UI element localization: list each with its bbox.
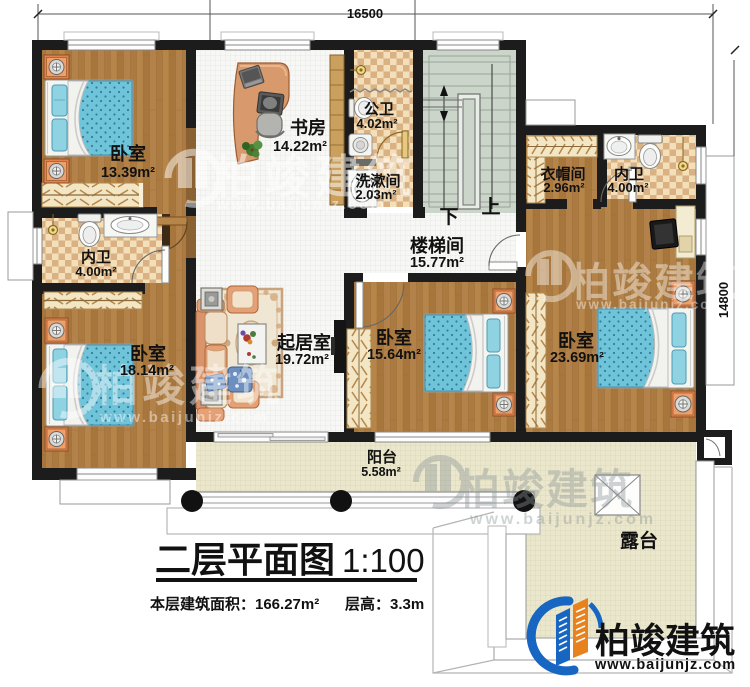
svg-text:二层平面图: 二层平面图 (155, 539, 335, 580)
svg-text:1:100: 1:100 (342, 542, 425, 579)
svg-text:楼梯间: 楼梯间 (410, 235, 464, 256)
svg-text:15.64m²: 15.64m² (367, 347, 421, 363)
svg-text:15.77m²: 15.77m² (410, 255, 464, 271)
svg-text:柏竣建筑: 柏竣建筑 (595, 621, 735, 661)
svg-text:4.00m²: 4.00m² (75, 264, 117, 279)
svg-text:www.baijunjz.com: www.baijunjz.com (469, 511, 656, 528)
svg-text:起居室: 起居室 (276, 332, 331, 353)
svg-text:层高：3.3m: 层高：3.3m (345, 595, 424, 613)
svg-text:卧室: 卧室 (376, 327, 412, 348)
svg-text:www.baijunjz.com: www.baijunjz.com (99, 409, 269, 426)
svg-text:23.69m²: 23.69m² (550, 350, 604, 366)
svg-text:书房: 书房 (290, 117, 326, 138)
svg-text:14.22m²: 14.22m² (273, 139, 327, 155)
svg-text:本层建筑面积：166.27m²: 本层建筑面积：166.27m² (150, 595, 319, 613)
svg-text:19.72m²: 19.72m² (275, 352, 329, 368)
svg-text:柏竣建筑: 柏竣建筑 (458, 466, 634, 513)
svg-text:卧室: 卧室 (130, 343, 166, 364)
svg-text:卧室: 卧室 (558, 330, 594, 351)
svg-text:18.14m²: 18.14m² (120, 363, 174, 379)
svg-text:14800: 14800 (716, 282, 731, 318)
svg-text:4.00m²: 4.00m² (607, 180, 649, 195)
svg-text:露台: 露台 (620, 529, 658, 552)
svg-text:阳台: 阳台 (367, 448, 397, 466)
svg-text:2.96m²: 2.96m² (543, 180, 585, 195)
svg-text:5.58m²: 5.58m² (361, 465, 401, 479)
svg-text:2.03m²: 2.03m² (355, 187, 397, 202)
svg-text:卧室: 卧室 (110, 143, 146, 164)
svg-text:下: 下 (439, 207, 458, 228)
svg-text:4.02m²: 4.02m² (356, 116, 398, 131)
svg-text:www.baijunjz.com: www.baijunjz.com (594, 657, 736, 673)
svg-text:www.baijunjz.com: www.baijunjz.com (575, 297, 725, 312)
svg-text:13.39m²: 13.39m² (101, 165, 155, 181)
svg-text:16500: 16500 (347, 6, 383, 21)
svg-text:上: 上 (481, 196, 500, 218)
